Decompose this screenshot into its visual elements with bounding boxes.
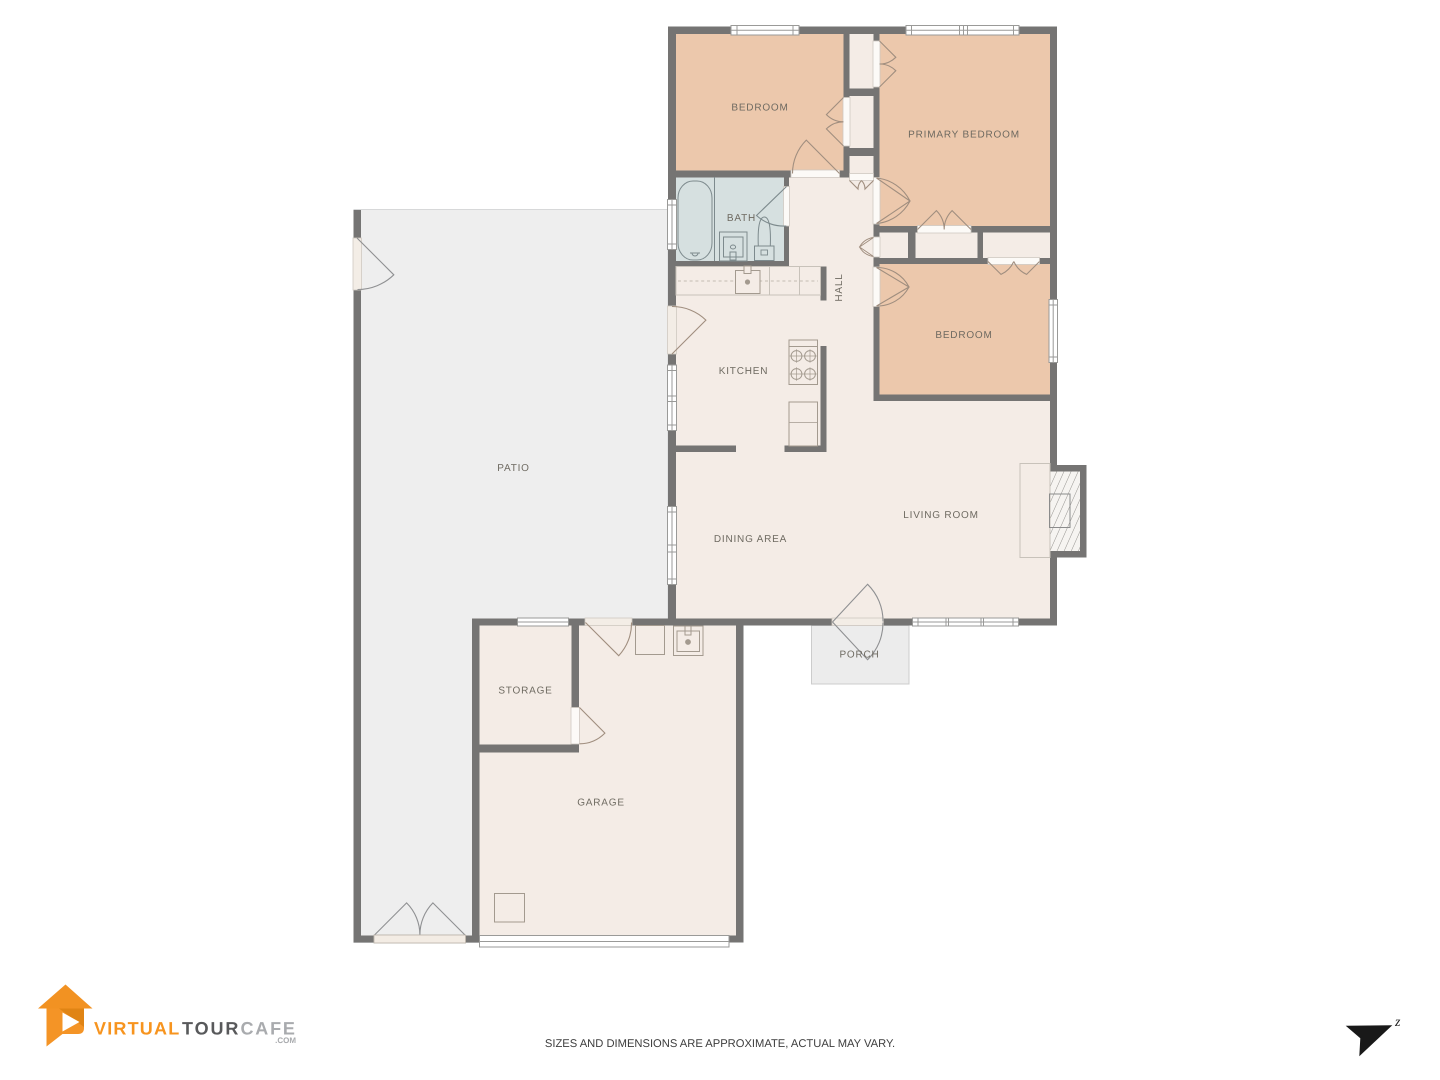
svg-text:TOUR: TOUR	[182, 1019, 240, 1039]
svg-text:LIVING ROOM: LIVING ROOM	[903, 510, 978, 521]
svg-text:BATH: BATH	[727, 213, 756, 224]
svg-text:PATIO: PATIO	[497, 463, 530, 474]
svg-text:z: z	[1394, 1015, 1401, 1030]
svg-text:BEDROOM: BEDROOM	[935, 330, 992, 341]
svg-text:GARAGE: GARAGE	[577, 798, 625, 809]
svg-text:.COM: .COM	[275, 1036, 296, 1045]
svg-text:SIZES AND DIMENSIONS ARE APPRO: SIZES AND DIMENSIONS ARE APPROXIMATE, AC…	[545, 1038, 895, 1050]
svg-text:BEDROOM: BEDROOM	[731, 103, 788, 114]
svg-text:DINING AREA: DINING AREA	[714, 534, 787, 545]
svg-text:HALL: HALL	[834, 273, 845, 301]
svg-text:PRIMARY BEDROOM: PRIMARY BEDROOM	[908, 130, 1020, 141]
svg-text:KITCHEN: KITCHEN	[719, 366, 769, 377]
svg-text:PORCH: PORCH	[839, 650, 879, 661]
svg-text:STORAGE: STORAGE	[498, 686, 552, 697]
svg-text:VIRTUAL: VIRTUAL	[94, 1019, 180, 1039]
